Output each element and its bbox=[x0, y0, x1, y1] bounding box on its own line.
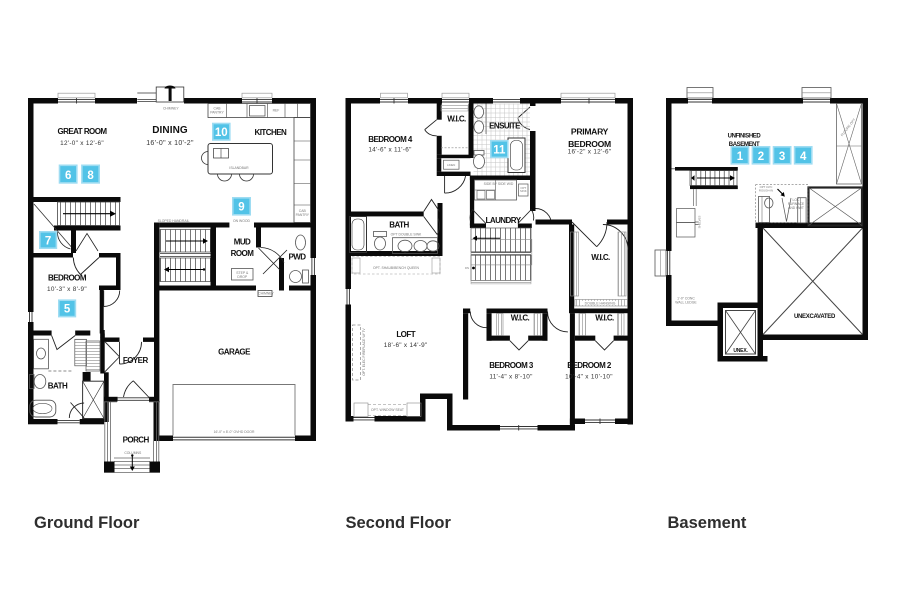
svg-text:BEDROOM 4: BEDROOM 4 bbox=[368, 135, 413, 144]
svg-text:PANTRY: PANTRY bbox=[296, 213, 310, 217]
svg-text:6: 6 bbox=[65, 170, 71, 182]
svg-text:4: 4 bbox=[800, 151, 807, 163]
svg-text:CHIMNEY: CHIMNEY bbox=[258, 292, 274, 296]
svg-text:5: 5 bbox=[64, 304, 71, 316]
svg-text:SHELVES: SHELVES bbox=[698, 216, 702, 229]
svg-text:8: 8 bbox=[87, 170, 94, 182]
svg-text:AND HWT: AND HWT bbox=[788, 206, 804, 210]
svg-text:OPT DOUBLE SINK: OPT DOUBLE SINK bbox=[391, 233, 422, 237]
svg-text:12'-0" x 12'-6": 12'-0" x 12'-6" bbox=[60, 140, 104, 147]
svg-text:11'-4" x 8'-10": 11'-4" x 8'-10" bbox=[489, 374, 532, 381]
svg-text:LINEN: LINEN bbox=[447, 163, 455, 167]
svg-text:10'-4" x 10'-10": 10'-4" x 10'-10" bbox=[565, 374, 613, 381]
svg-text:LAUNDRY: LAUNDRY bbox=[486, 216, 522, 225]
svg-text:W.I.C.: W.I.C. bbox=[447, 115, 466, 124]
svg-text:7: 7 bbox=[45, 235, 51, 247]
svg-text:ROUGH-IN: ROUGH-IN bbox=[759, 188, 773, 192]
svg-text:REF: REF bbox=[273, 109, 280, 113]
svg-text:11: 11 bbox=[493, 144, 506, 156]
svg-text:BEDROOM 3: BEDROOM 3 bbox=[489, 361, 534, 370]
svg-text:16'-0" x 8'-0" OVHD DOOR: 16'-0" x 8'-0" OVHD DOOR bbox=[214, 430, 255, 434]
svg-text:W.I.C.: W.I.C. bbox=[591, 253, 610, 262]
svg-text:COLUMNS: COLUMNS bbox=[124, 451, 142, 455]
svg-text:MUD: MUD bbox=[234, 238, 251, 247]
svg-text:16'-2" x 12'-6": 16'-2" x 12'-6" bbox=[568, 149, 612, 156]
svg-text:9: 9 bbox=[238, 202, 244, 214]
svg-text:DN: DN bbox=[465, 266, 469, 270]
svg-text:ENSUITE: ENSUITE bbox=[489, 121, 521, 130]
svg-text:OPT. WINDOW SEAT: OPT. WINDOW SEAT bbox=[371, 408, 404, 412]
svg-text:DINING: DINING bbox=[152, 125, 188, 136]
svg-text:ISLANDBAR: ISLANDBAR bbox=[229, 166, 249, 170]
svg-text:FOYER: FOYER bbox=[123, 356, 149, 365]
svg-text:UNEX.: UNEX. bbox=[733, 348, 748, 354]
svg-text:DROP: DROP bbox=[237, 275, 248, 279]
svg-text:Ground Floor: Ground Floor bbox=[34, 514, 140, 532]
svg-text:DOUBLE HANGING: DOUBLE HANGING bbox=[585, 301, 616, 305]
svg-text:WALL LEDGE: WALL LEDGE bbox=[675, 301, 697, 305]
svg-text:2: 2 bbox=[758, 151, 764, 163]
svg-text:BEDROOM 2: BEDROOM 2 bbox=[567, 361, 612, 370]
svg-text:CHIMNEY: CHIMNEY bbox=[163, 106, 179, 110]
svg-text:1: 1 bbox=[737, 151, 744, 163]
svg-text:SLOPED HANDRAIL: SLOPED HANDRAIL bbox=[158, 219, 190, 223]
svg-text:18'-6" x 14'-9": 18'-6" x 14'-9" bbox=[384, 342, 428, 349]
svg-text:PORCH: PORCH bbox=[123, 435, 150, 444]
svg-text:3: 3 bbox=[779, 151, 785, 163]
svg-text:10: 10 bbox=[215, 127, 228, 139]
svg-text:GREAT ROOM: GREAT ROOM bbox=[57, 127, 107, 136]
svg-text:Second Floor: Second Floor bbox=[346, 514, 452, 532]
svg-text:BEDROOM: BEDROOM bbox=[568, 139, 611, 149]
svg-text:Basement: Basement bbox=[668, 514, 747, 532]
svg-text:UNEXCAVATED: UNEXCAVATED bbox=[794, 314, 836, 320]
svg-text:LOFT: LOFT bbox=[396, 330, 415, 339]
svg-text:UNFINISHED: UNFINISHED bbox=[728, 134, 762, 140]
svg-text:BATH: BATH bbox=[48, 382, 68, 391]
svg-text:OPT. ELEC FIREPLACE W/ TV: OPT. ELEC FIREPLACE W/ TV bbox=[362, 328, 366, 376]
svg-text:OPT. SHAUB/BENCH QUEEN: OPT. SHAUB/BENCH QUEEN bbox=[373, 266, 420, 270]
svg-text:BEDROOM: BEDROOM bbox=[48, 274, 87, 283]
svg-text:KITCHEN: KITCHEN bbox=[255, 128, 287, 137]
svg-text:PRIMARY: PRIMARY bbox=[571, 126, 609, 136]
svg-text:16'-0" x 10'-2": 16'-0" x 10'-2" bbox=[146, 140, 194, 147]
svg-text:SINK: SINK bbox=[520, 189, 527, 193]
svg-text:ON WOOD: ON WOOD bbox=[233, 219, 251, 223]
svg-text:14'-6" x 11'-6": 14'-6" x 11'-6" bbox=[368, 147, 411, 154]
svg-text:10'-3" x 8'-9": 10'-3" x 8'-9" bbox=[47, 286, 87, 293]
svg-text:PANTRY: PANTRY bbox=[210, 111, 224, 115]
svg-text:W.I.C.: W.I.C. bbox=[595, 314, 614, 323]
svg-text:SIDE BY SIDE W/D: SIDE BY SIDE W/D bbox=[484, 182, 514, 186]
svg-text:GARAGE: GARAGE bbox=[218, 348, 251, 357]
svg-text:W.I.C.: W.I.C. bbox=[511, 314, 530, 323]
svg-text:ROOM: ROOM bbox=[231, 249, 255, 258]
svg-text:BATH: BATH bbox=[389, 220, 409, 229]
svg-text:PWD: PWD bbox=[288, 253, 306, 262]
